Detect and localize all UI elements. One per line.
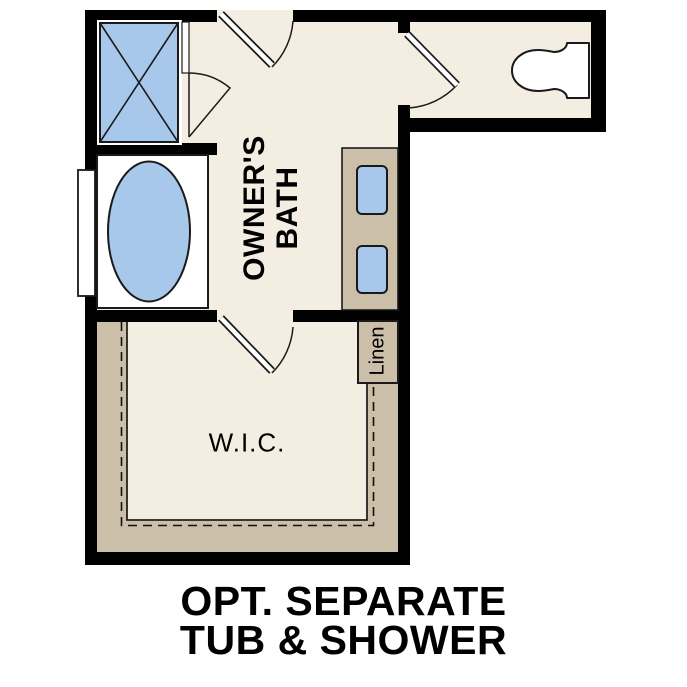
plan-caption-line1: OPT. SEPARATE: [0, 582, 687, 621]
sink-bottom: [357, 246, 387, 293]
floor-plan-page: { "title": { "line1": "OPT. SEPARATE", "…: [0, 0, 687, 687]
linen-label: Linen: [367, 327, 390, 376]
plan-caption-line2: TUB & SHOWER: [0, 621, 687, 660]
wall-bottom: [85, 552, 410, 565]
owners-bath-label-line2: BATH: [271, 135, 304, 281]
wall-toilet-room-bottom: [398, 118, 606, 132]
wic-floor: [127, 322, 367, 520]
bathtub: [97, 155, 208, 308]
window: [78, 170, 95, 296]
plan-caption: OPT. SEPARATE TUB & SHOWER: [0, 582, 687, 660]
wall-toilet-room-right: [591, 10, 606, 132]
wall-bath-wic-left: [85, 310, 217, 322]
wall-toilet-door-stub: [398, 10, 410, 33]
wic-label: W.I.C.: [209, 428, 286, 459]
wall-right: [398, 105, 410, 565]
owners-bath-label: OWNER'S BATH: [238, 135, 304, 281]
owners-bath-label-line1: OWNER'S: [238, 135, 271, 281]
vanity: [342, 148, 398, 310]
wall-top-right: [293, 10, 606, 22]
bathtub-basin: [108, 162, 190, 302]
sink-top: [357, 166, 387, 214]
shower-glass-panel: [182, 22, 189, 73]
